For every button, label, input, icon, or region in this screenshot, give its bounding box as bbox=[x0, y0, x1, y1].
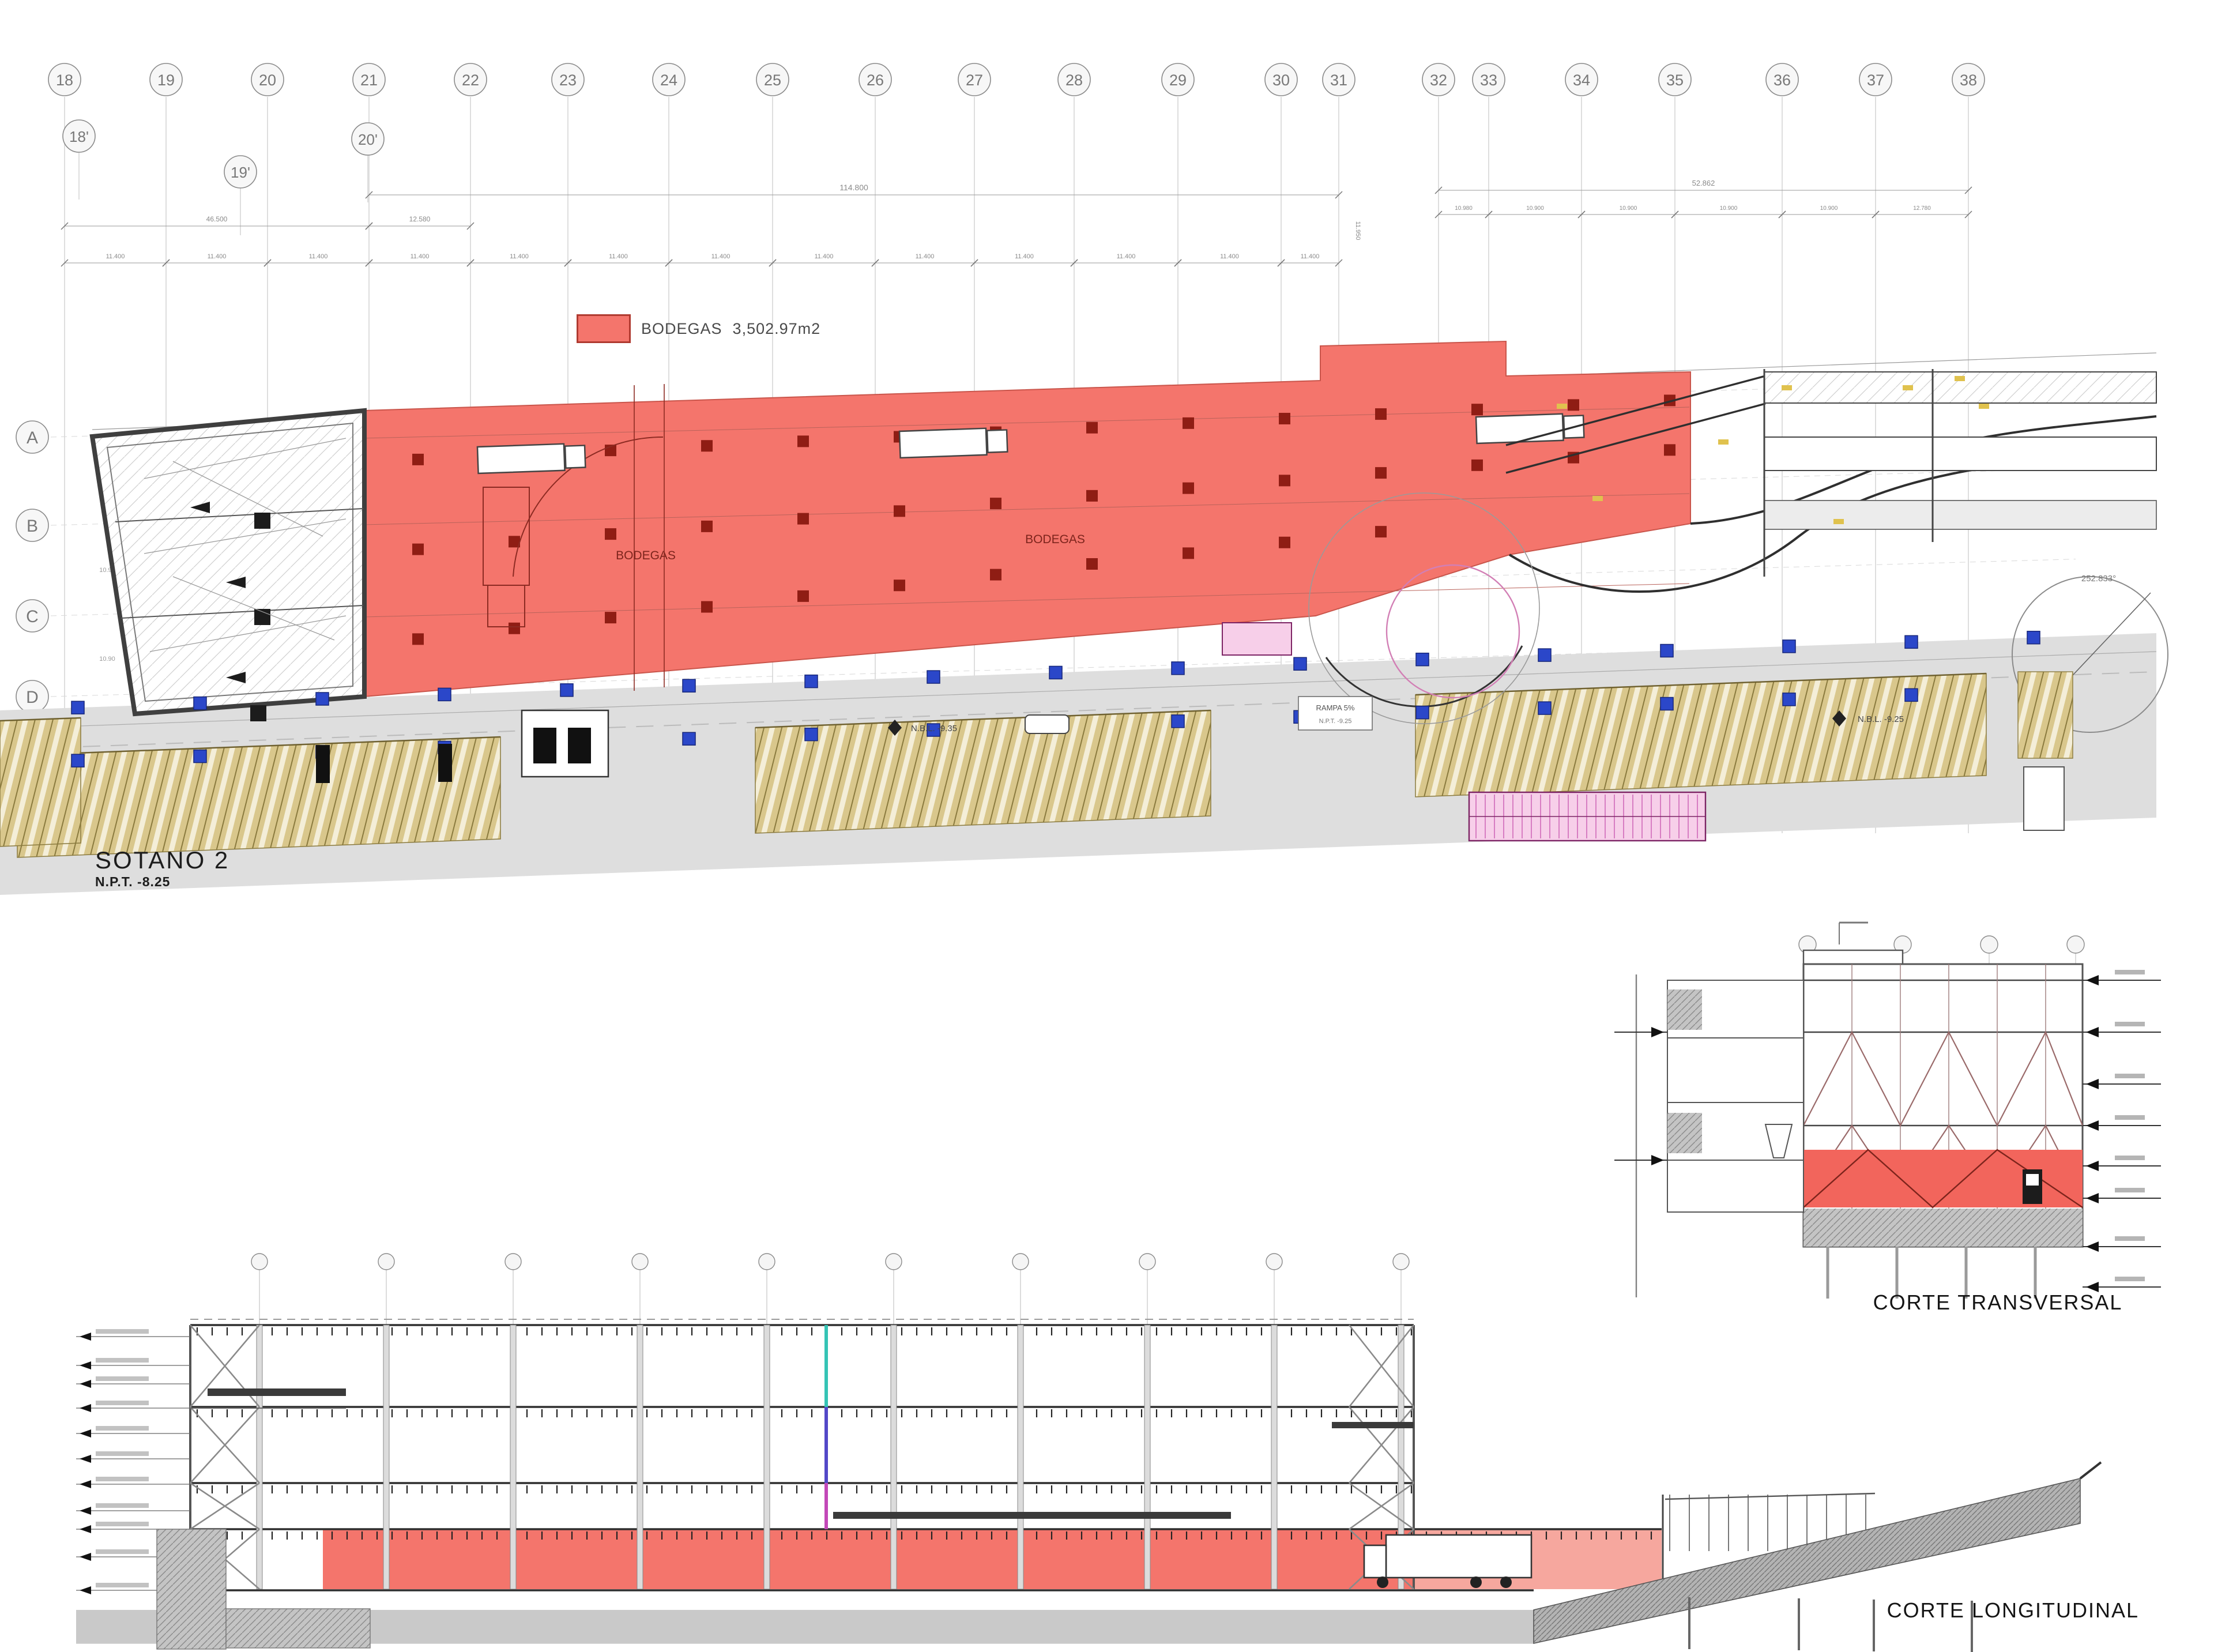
yellow-marking bbox=[1955, 376, 1965, 381]
level-marker-arrow bbox=[2086, 975, 2099, 985]
level-marker-text bbox=[2115, 1156, 2145, 1160]
blue-column bbox=[71, 701, 84, 714]
column-dot bbox=[1471, 404, 1483, 415]
level-note-arrow bbox=[80, 1380, 91, 1388]
wing-cell bbox=[1667, 1113, 1702, 1153]
column-dot bbox=[1086, 558, 1098, 570]
column-dot bbox=[797, 435, 809, 447]
dock-column bbox=[254, 513, 270, 529]
yellow-marking bbox=[1782, 385, 1792, 390]
wing-cell bbox=[1667, 989, 1702, 1030]
level-marker-text bbox=[2115, 1074, 2145, 1078]
level-note-arrow bbox=[80, 1429, 91, 1437]
truck-trailer bbox=[1386, 1535, 1531, 1578]
level-note-arrow bbox=[80, 1480, 91, 1488]
column-dot bbox=[894, 505, 905, 517]
transversal-section-label: CORTE TRANSVERSAL bbox=[1819, 1290, 2177, 1315]
blue-column bbox=[1294, 657, 1306, 670]
column-dot bbox=[1664, 444, 1675, 456]
bodegas-label: BODEGAS bbox=[616, 549, 676, 562]
level-marker-text bbox=[2115, 970, 2145, 974]
dim-text: 11.400 bbox=[609, 253, 628, 260]
low-lane-band bbox=[1764, 501, 2156, 529]
dim-text: 12.780 bbox=[1913, 205, 1931, 212]
blue-column bbox=[805, 728, 818, 741]
ramp-note-box: RAMPA 5%N.P.T. -9.25 bbox=[1298, 697, 1372, 730]
truck-trailer bbox=[899, 428, 987, 458]
grid-bubble-label: 18' bbox=[69, 128, 89, 145]
bodegas-label: BODEGAS bbox=[1025, 533, 1085, 546]
grid-bubble-label: 20' bbox=[358, 131, 378, 148]
grid-bubble-label: 37 bbox=[1867, 72, 1884, 89]
elevator-box bbox=[522, 710, 608, 777]
column-dot bbox=[412, 633, 424, 645]
pink-stair-small bbox=[1222, 623, 1291, 655]
blue-column bbox=[560, 684, 573, 697]
section-column bbox=[891, 1325, 897, 1589]
section-grid-bubble bbox=[632, 1254, 648, 1270]
blue-column bbox=[438, 688, 451, 701]
level-note-text bbox=[96, 1358, 149, 1363]
grid-bubble-label: 19' bbox=[231, 164, 250, 181]
truck-cab bbox=[987, 430, 1007, 453]
level-note-arrow bbox=[80, 1553, 91, 1561]
level-marker-text bbox=[2115, 1022, 2145, 1026]
dim-text: 114.800 bbox=[839, 183, 868, 192]
blue-column bbox=[1905, 688, 1918, 701]
grid-bubble-label: 22 bbox=[462, 72, 479, 89]
dim-text: 10.900 bbox=[1820, 205, 1838, 212]
car-plan bbox=[1025, 715, 1069, 733]
level-note-arrow bbox=[80, 1525, 91, 1533]
transversal-section bbox=[1614, 923, 2161, 1299]
grid-bubble-label: 28 bbox=[1065, 72, 1083, 89]
truck-trailer bbox=[477, 444, 565, 473]
level-note-arrow bbox=[80, 1333, 91, 1341]
dim-text: 11.400 bbox=[1301, 253, 1320, 260]
nbl-right-label: N.B.L. -9.25 bbox=[1858, 714, 1904, 724]
parking-band bbox=[17, 737, 500, 857]
dim-text: 11.400 bbox=[815, 253, 834, 260]
small-room bbox=[2024, 767, 2064, 830]
section-grid-bubble bbox=[1266, 1254, 1282, 1270]
yellow-marking bbox=[1903, 385, 1913, 390]
column-dot bbox=[894, 579, 905, 591]
parking-band bbox=[0, 718, 81, 846]
grid-bubble-label: 18 bbox=[56, 72, 73, 89]
ramp-note-text2: N.P.T. -9.25 bbox=[1319, 718, 1352, 725]
drawing-sheet: 1819202122232425262728293031323334353637… bbox=[0, 0, 2214, 1652]
level-note-arrow bbox=[80, 1361, 91, 1369]
row-bubble-label: A bbox=[27, 428, 38, 447]
grid-bubble-label: 20 bbox=[259, 72, 276, 89]
section-column bbox=[257, 1325, 262, 1589]
section-column bbox=[1271, 1325, 1277, 1589]
dim-text: 12.580 bbox=[409, 215, 431, 223]
dim-text: 52.862 bbox=[1692, 179, 1715, 187]
level-marker-arrow bbox=[2086, 1241, 2099, 1252]
blue-column bbox=[1660, 698, 1673, 710]
level-note-arrow bbox=[80, 1455, 91, 1463]
level-marker-arrow bbox=[2086, 1079, 2099, 1089]
level-note-text bbox=[96, 1503, 149, 1508]
column-dot bbox=[797, 590, 809, 602]
column-dot bbox=[1375, 526, 1387, 537]
column-dot bbox=[605, 528, 616, 540]
blue-column bbox=[71, 754, 84, 767]
yellow-marking bbox=[1557, 404, 1567, 409]
column-dot bbox=[1279, 475, 1290, 486]
grid-bubble-label: 32 bbox=[1430, 72, 1447, 89]
truck-wheel bbox=[1470, 1576, 1482, 1588]
level-note-text bbox=[96, 1329, 149, 1334]
yellow-marking bbox=[1979, 404, 1989, 409]
grid-bubble-label: 31 bbox=[1330, 72, 1347, 89]
level-note-text bbox=[96, 1549, 149, 1554]
section-grid-bubble bbox=[2067, 936, 2084, 953]
section-column bbox=[637, 1325, 643, 1589]
dim-text: 11.400 bbox=[1220, 253, 1239, 260]
column-dot bbox=[509, 623, 520, 634]
blue-column bbox=[2027, 631, 2040, 644]
plan-title: SOTANO 2 bbox=[95, 846, 229, 874]
column-dot bbox=[1375, 408, 1387, 420]
blue-column bbox=[683, 679, 695, 692]
column-dot bbox=[797, 513, 809, 525]
foundation-block bbox=[226, 1609, 370, 1648]
mezzanine-strip bbox=[833, 1512, 1231, 1519]
dim-text: 11.950 bbox=[1354, 221, 1361, 240]
grid-bubble-label: 24 bbox=[660, 72, 677, 89]
column-dot bbox=[990, 569, 1001, 581]
column-dot bbox=[1471, 460, 1483, 471]
grid-bubble-label: 21 bbox=[360, 72, 378, 89]
level-marker-arrow bbox=[2086, 1193, 2099, 1203]
grid-bubble-label: 23 bbox=[559, 72, 577, 89]
yellow-marking bbox=[1718, 439, 1729, 445]
truck-cab bbox=[1364, 1545, 1386, 1578]
blue-column bbox=[1783, 640, 1795, 653]
blue-column bbox=[1416, 706, 1429, 719]
level-marker-arrow bbox=[2086, 1161, 2099, 1171]
bodegas-red-zone bbox=[364, 341, 1690, 697]
level-marker-text bbox=[2115, 1188, 2145, 1192]
dim-text: 10.900 bbox=[1720, 205, 1738, 212]
dim-text: 10.900 bbox=[1620, 205, 1637, 212]
section-grid-bubble bbox=[759, 1254, 775, 1270]
elevator-cab bbox=[533, 728, 556, 763]
section-grid-bubble bbox=[1980, 936, 1998, 953]
blue-column bbox=[194, 697, 206, 710]
grid-bubble-label: 33 bbox=[1480, 72, 1497, 89]
plan-layer: BODEGASBODEGAS252.833°N.B.L. -9.35N.B.L.… bbox=[0, 341, 2168, 895]
plan-level: N.P.T. -8.25 bbox=[95, 874, 229, 890]
turn-angle-label: 252.833° bbox=[2081, 574, 2116, 584]
legend-area: 3,502.97m2 bbox=[733, 320, 821, 338]
grid-bubble-label: 26 bbox=[867, 72, 884, 89]
door-bar bbox=[438, 744, 452, 782]
column-dot bbox=[1279, 413, 1290, 424]
door-bar bbox=[316, 745, 330, 783]
grid-bubble-label: 29 bbox=[1169, 72, 1187, 89]
truck-wheel bbox=[1500, 1576, 1512, 1588]
level-marker-arrow bbox=[2086, 1120, 2099, 1131]
grid-bubble-label: 38 bbox=[1960, 72, 1977, 89]
level-note-arrow bbox=[80, 1507, 91, 1515]
column-dot bbox=[1086, 422, 1098, 434]
blue-column bbox=[1049, 666, 1062, 679]
elevator-cab bbox=[568, 728, 591, 763]
section-grid-bubble bbox=[1393, 1254, 1409, 1270]
section-grid-bubble bbox=[505, 1254, 521, 1270]
yellow-marking bbox=[1592, 496, 1603, 501]
level-note-text bbox=[96, 1477, 149, 1481]
grid-bubble-label: 35 bbox=[1666, 72, 1684, 89]
level-marker-arrow bbox=[1651, 1027, 1664, 1037]
truck-cab bbox=[565, 446, 585, 468]
column-dot bbox=[605, 612, 616, 623]
longitudinal-section-label: CORTE LONGITUDINAL bbox=[1782, 1598, 2139, 1623]
legend: BODEGAS 3,502.97m2 bbox=[577, 314, 820, 343]
plan-title-block: SOTANO 2 N.P.T. -8.25 bbox=[95, 846, 229, 890]
column-dot bbox=[1183, 483, 1194, 494]
dim-text: 46.500 bbox=[206, 215, 228, 223]
blue-column bbox=[1172, 662, 1184, 675]
legend-label: BODEGAS bbox=[641, 320, 722, 338]
section-grid-bubble bbox=[1012, 1254, 1029, 1270]
row-bubble-label: C bbox=[26, 607, 39, 626]
level-marker-arrow bbox=[2086, 1027, 2099, 1037]
dim-text: 11.400 bbox=[411, 253, 430, 260]
level-note-text bbox=[96, 1451, 149, 1456]
stair-hatch bbox=[2018, 672, 2073, 758]
level-note-arrow bbox=[80, 1404, 91, 1412]
forklift-window bbox=[2026, 1174, 2039, 1186]
grid-bubble-label: 25 bbox=[764, 72, 781, 89]
blue-column bbox=[1538, 649, 1551, 661]
column-dot bbox=[1279, 537, 1290, 548]
blue-column bbox=[194, 750, 206, 763]
dim-text: 11.400 bbox=[916, 253, 935, 260]
section-grid-bubble bbox=[251, 1254, 268, 1270]
section-column bbox=[383, 1325, 389, 1589]
row-bubble-label: B bbox=[27, 517, 38, 536]
level-note-text bbox=[96, 1583, 149, 1587]
dim-text: 11.400 bbox=[106, 253, 125, 260]
section-column bbox=[1144, 1325, 1150, 1589]
level-marker-text bbox=[2115, 1277, 2145, 1281]
column-dot bbox=[701, 521, 713, 532]
blue-column bbox=[683, 732, 695, 745]
level-note-text bbox=[96, 1522, 149, 1526]
dim-text: 11.400 bbox=[309, 253, 328, 260]
section-column bbox=[764, 1325, 770, 1589]
blue-column bbox=[1783, 693, 1795, 706]
section-grid-bubble bbox=[378, 1254, 394, 1270]
dock-column bbox=[250, 705, 266, 721]
column-dot bbox=[990, 498, 1001, 509]
mezzanine-strip bbox=[208, 1388, 346, 1396]
shaft-violet bbox=[824, 1407, 828, 1483]
row-bubble-label: D bbox=[26, 688, 39, 707]
blue-column bbox=[1416, 653, 1429, 666]
legend-swatch bbox=[577, 314, 631, 343]
section-red-basement bbox=[323, 1529, 1414, 1589]
truck-wheel bbox=[1377, 1576, 1388, 1588]
level-note-text bbox=[96, 1376, 149, 1381]
level-note-text bbox=[96, 1426, 149, 1431]
shaft-magenta bbox=[824, 1483, 828, 1529]
column-dot bbox=[701, 440, 713, 451]
dim-text: 10.90 bbox=[99, 656, 115, 663]
column-dot bbox=[412, 544, 424, 555]
truck-trailer bbox=[1476, 414, 1564, 443]
dock-block bbox=[92, 411, 364, 714]
section-grid-bubble bbox=[886, 1254, 902, 1270]
level-note-text bbox=[96, 1401, 149, 1405]
section-column bbox=[510, 1325, 516, 1589]
blue-column bbox=[1660, 645, 1673, 657]
column-dot bbox=[1086, 490, 1098, 502]
section-grid-bubble bbox=[1139, 1254, 1155, 1270]
shaft-teal bbox=[824, 1325, 828, 1407]
grid-bubble-label: 30 bbox=[1272, 72, 1290, 89]
dim-text: 11.400 bbox=[1015, 253, 1034, 260]
column-dot bbox=[1568, 399, 1579, 411]
pink-stair bbox=[1469, 792, 1705, 841]
blue-column bbox=[1905, 635, 1918, 648]
blue-column bbox=[316, 693, 329, 705]
blue-column bbox=[1538, 702, 1551, 714]
dim-text: 11.400 bbox=[510, 253, 529, 260]
level-marker-arrow bbox=[1651, 1155, 1664, 1165]
column-dot bbox=[1183, 547, 1194, 559]
column-dot bbox=[701, 601, 713, 612]
ramp-lip bbox=[2080, 1462, 2101, 1478]
blue-column bbox=[805, 675, 818, 688]
grid-bubble-label: 19 bbox=[157, 72, 175, 89]
grid-bubble-label: 36 bbox=[1774, 72, 1791, 89]
foundation-block bbox=[157, 1529, 226, 1649]
mid-lane-band bbox=[1764, 437, 2156, 471]
blue-column bbox=[927, 671, 940, 683]
column-dot bbox=[412, 454, 424, 465]
level-marker-text bbox=[2115, 1236, 2145, 1241]
grid-bubble-label: 27 bbox=[966, 72, 983, 89]
blue-column bbox=[1172, 715, 1184, 728]
column-dot bbox=[1183, 417, 1194, 429]
foundation-band bbox=[1803, 1209, 2083, 1247]
ramp-note-frame bbox=[1298, 697, 1372, 730]
column-dot bbox=[1375, 467, 1387, 479]
dim-text: 11.400 bbox=[208, 253, 227, 260]
level-note-arrow bbox=[80, 1586, 91, 1594]
ramp-note-text: RAMPA 5% bbox=[1316, 703, 1355, 712]
dim-text: 11.400 bbox=[1117, 253, 1136, 260]
dim-text: 10.900 bbox=[1526, 205, 1544, 212]
longitudinal-section bbox=[76, 1254, 2101, 1652]
section-column bbox=[1018, 1325, 1023, 1589]
dim-text: 11.400 bbox=[711, 253, 731, 260]
parking-band bbox=[755, 710, 1211, 833]
railing-rail bbox=[1665, 1493, 1875, 1499]
level-marker-text bbox=[2115, 1115, 2145, 1120]
yellow-marking bbox=[1833, 519, 1844, 524]
grid-bubble-label: 34 bbox=[1573, 72, 1590, 89]
plan-linework: 1819202122232425262728293031323334353637… bbox=[0, 0, 2214, 1652]
dim-text: 10.980 bbox=[1455, 205, 1473, 212]
mezzanine-strip bbox=[1332, 1422, 1414, 1428]
nbl-left-label: N.B.L. -9.35 bbox=[911, 724, 957, 733]
